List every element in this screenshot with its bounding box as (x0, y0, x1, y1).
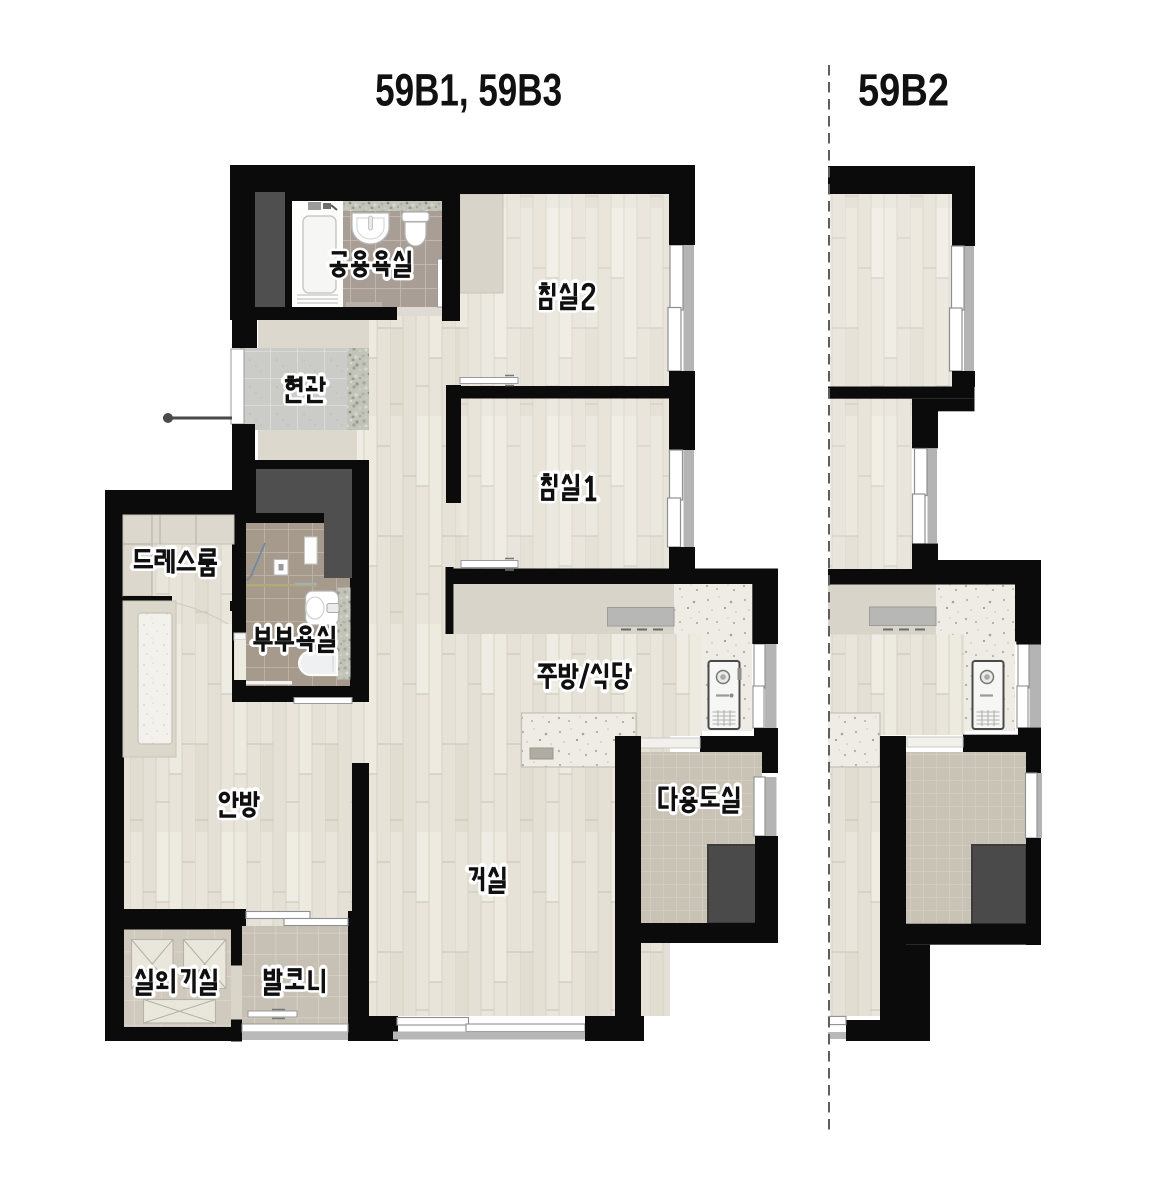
svg-text:59B2: 59B2 (858, 65, 949, 116)
svg-text:59B1, 59B3: 59B1, 59B3 (375, 65, 562, 116)
